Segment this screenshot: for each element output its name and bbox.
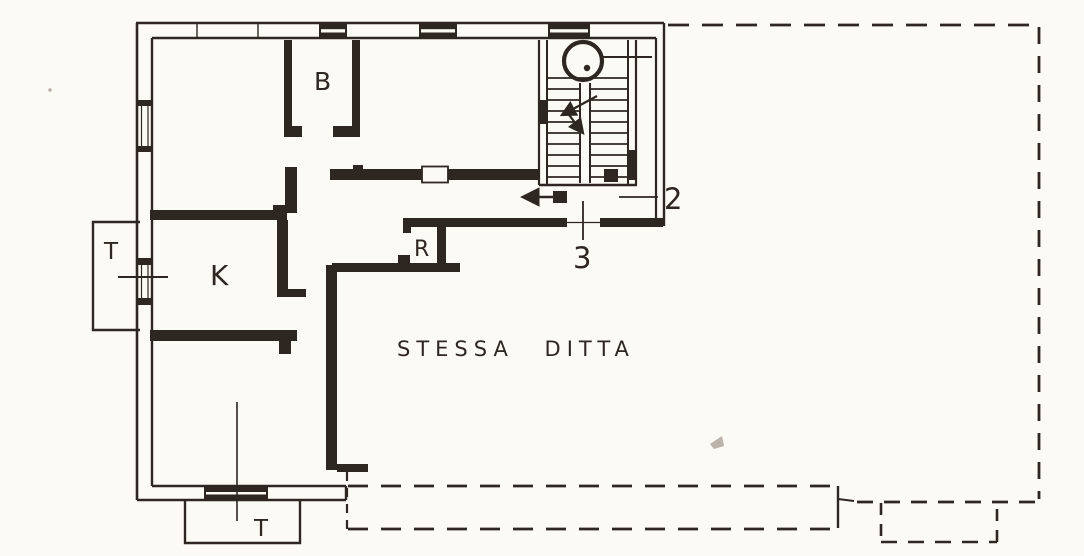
room-label-r: R <box>414 237 429 262</box>
marker-2-label: 2 <box>664 182 682 216</box>
adjacent-balcony-box <box>881 503 997 542</box>
left-window-upper <box>138 100 152 152</box>
stair-stringer <box>580 83 590 183</box>
top-wall <box>136 23 664 38</box>
left-wall <box>118 23 168 500</box>
wall-boundary-vertical <box>326 265 337 470</box>
stair-circle-symbol <box>564 42 652 80</box>
wall-b-left <box>284 40 292 128</box>
wall-b-right-foot <box>333 126 360 137</box>
adjacent-unit-boundary <box>668 25 1039 502</box>
scan-speck-left <box>48 88 51 91</box>
wall-b-left-foot <box>284 126 302 137</box>
floor-plan-scan: 2 3 B <box>0 0 1084 556</box>
room-label-k: K <box>210 259 229 292</box>
top-window-2 <box>420 23 456 38</box>
wall-corridor-top-bump <box>353 165 363 171</box>
top-window-1 <box>320 23 346 38</box>
arrow-tail-square <box>553 191 567 203</box>
corridor-exit-arrow <box>523 191 567 203</box>
wall-corridor-bottom-stub <box>403 218 411 233</box>
door-marker-2: 2 <box>619 182 682 216</box>
wall-r-east <box>437 225 446 265</box>
annotation-stessa-ditta: STESSA DITTA <box>397 337 635 361</box>
scan-speck-right <box>710 436 724 449</box>
top-window-3 <box>549 23 589 38</box>
wall-hall-west <box>285 167 297 213</box>
room-label-b: B <box>314 67 331 96</box>
terrace-label-left: T <box>103 239 119 265</box>
right-wall <box>656 23 664 226</box>
wall-k-east-foot <box>288 289 306 297</box>
staircase <box>539 40 652 185</box>
terrace-label-bottom: T <box>253 516 269 542</box>
wall-k-top <box>150 210 287 220</box>
wall-corridor-bottom-left <box>403 218 567 227</box>
left-window-lower <box>118 258 168 305</box>
wall-b-right <box>352 40 360 137</box>
wall-k-bottom <box>150 330 297 341</box>
floor-plan-drawing: 2 3 B <box>48 23 1039 543</box>
wall-k-east <box>277 220 288 297</box>
bottom-window <box>205 402 267 521</box>
terrace-bottom-outline <box>185 500 300 543</box>
corridor-wall-window <box>422 167 448 183</box>
wall-corridor-bottom-right <box>600 218 663 227</box>
marker-3-label: 3 <box>573 241 591 275</box>
bottom-wall <box>137 402 346 521</box>
adjacent-balcony-strip <box>347 472 854 529</box>
wall-boundary-tick <box>337 464 368 472</box>
stair-circle-dot <box>584 65 590 71</box>
door-marker-3: 3 <box>573 201 591 275</box>
stair-landing-blob <box>604 169 618 182</box>
wall-r-bottom-bump <box>398 255 410 263</box>
wall-k-bottom-stub <box>279 341 291 354</box>
